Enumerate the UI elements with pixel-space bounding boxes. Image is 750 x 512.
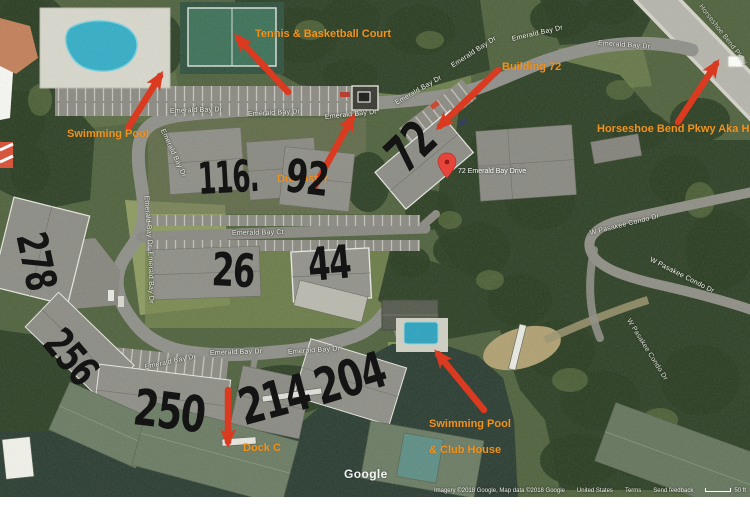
annotation-dock-c: Dock C bbox=[243, 442, 281, 454]
attribution-terms-link[interactable]: Terms bbox=[625, 488, 641, 494]
road-label-emerald-bay-dr: Emerald Bay Dr bbox=[147, 251, 155, 303]
annotation-horseshoe-bend-pkwy: Horseshoe Bend Pkwy Aka HH bbox=[597, 123, 750, 135]
scale-bar bbox=[705, 488, 731, 492]
annotation-swimming-pool-club-line2: & Club House bbox=[429, 444, 501, 456]
satellite-map[interactable]: Emerald Bay Dr Emerald Bay Dr Emerald Ba… bbox=[0, 0, 750, 497]
handwritten-number-44: 44 bbox=[306, 238, 352, 287]
attribution-imagery: Imagery ©2018 Google, Map data ©2018 Goo… bbox=[434, 488, 565, 494]
annotation-swimming-pool-top: Swimming Pool bbox=[67, 128, 149, 140]
grain-overlay bbox=[0, 0, 750, 497]
annotation-building-72: Building 72 bbox=[502, 61, 561, 73]
handwritten-number-278: 278 bbox=[9, 229, 62, 294]
google-watermark: Google bbox=[344, 467, 388, 481]
handwritten-number-92: 92 bbox=[283, 152, 330, 203]
road-label-emerald-bay-ct: Emerald Bay Ct bbox=[232, 229, 284, 237]
satellite-imagery-layer bbox=[0, 0, 750, 497]
map-attribution: Imagery ©2018 Google, Map data ©2018 Goo… bbox=[434, 488, 746, 494]
handwritten-number-250: 250 bbox=[131, 382, 207, 440]
attribution-region: United States bbox=[577, 488, 613, 494]
attribution-scale: 50 ft bbox=[705, 488, 746, 494]
scan-margin bbox=[0, 497, 750, 512]
annotation-tennis-basketball-court: Tennis & Basketball Court bbox=[255, 28, 391, 40]
annotation-swimming-pool-club-line1: Swimming Pool bbox=[429, 418, 511, 430]
attribution-feedback-link[interactable]: Send feedback bbox=[653, 488, 693, 494]
handwritten-number-26: 26 bbox=[211, 246, 255, 294]
pin-label-72-emerald-bay-drive: 72 Emerald Bay Drive bbox=[458, 168, 526, 175]
handwritten-number-116: 116. bbox=[197, 155, 260, 202]
